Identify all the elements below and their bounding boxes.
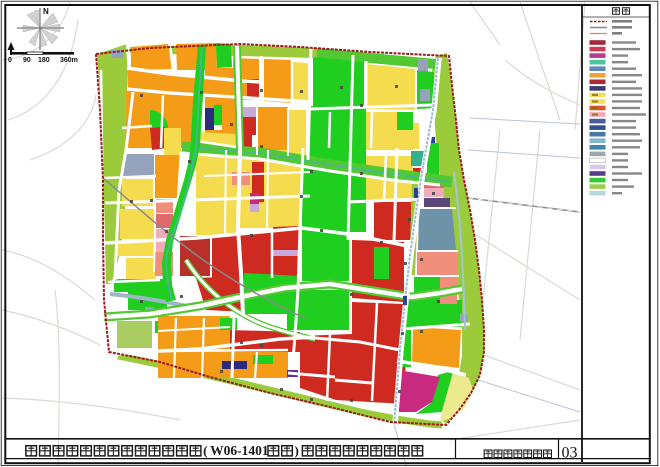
svg-text:): )	[295, 443, 299, 458]
svg-text:0: 0	[8, 57, 12, 64]
svg-text:03: 03	[562, 445, 578, 462]
svg-text:360m: 360m	[60, 57, 78, 64]
svg-text:180: 180	[38, 57, 50, 64]
svg-text:(: (	[203, 443, 207, 458]
svg-text:W06-1401: W06-1401	[210, 443, 269, 458]
svg-text:90: 90	[23, 57, 31, 64]
svg-text:N: N	[43, 7, 49, 16]
